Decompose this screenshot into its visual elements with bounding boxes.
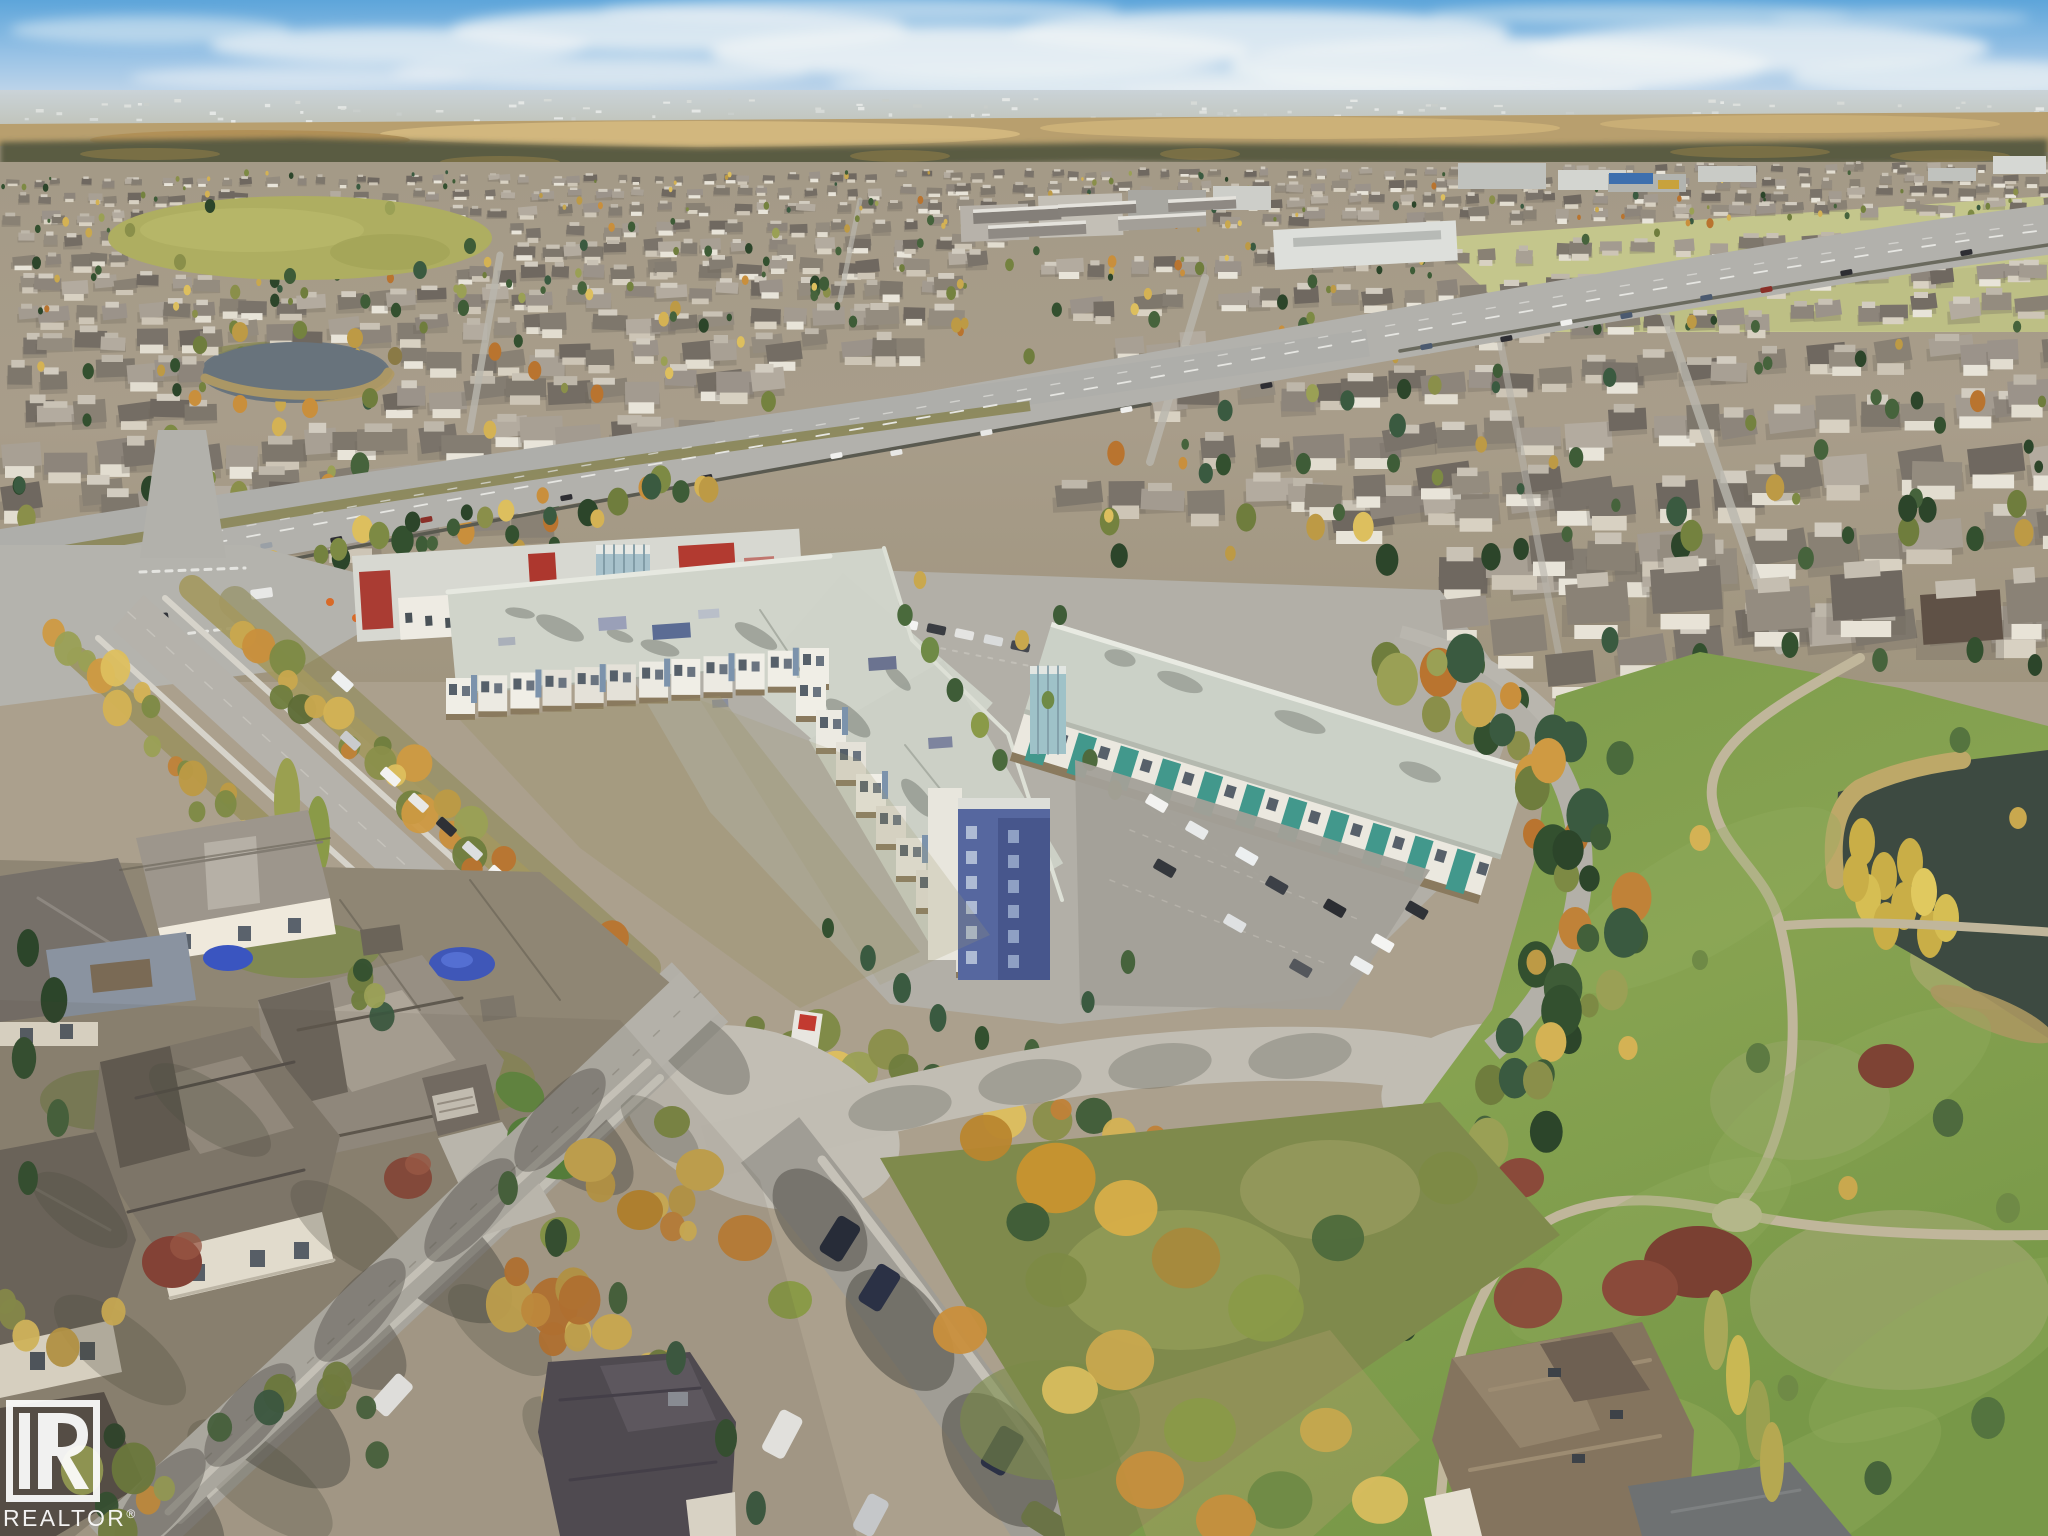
svg-text:REALTOR®: REALTOR® — [3, 1505, 138, 1531]
